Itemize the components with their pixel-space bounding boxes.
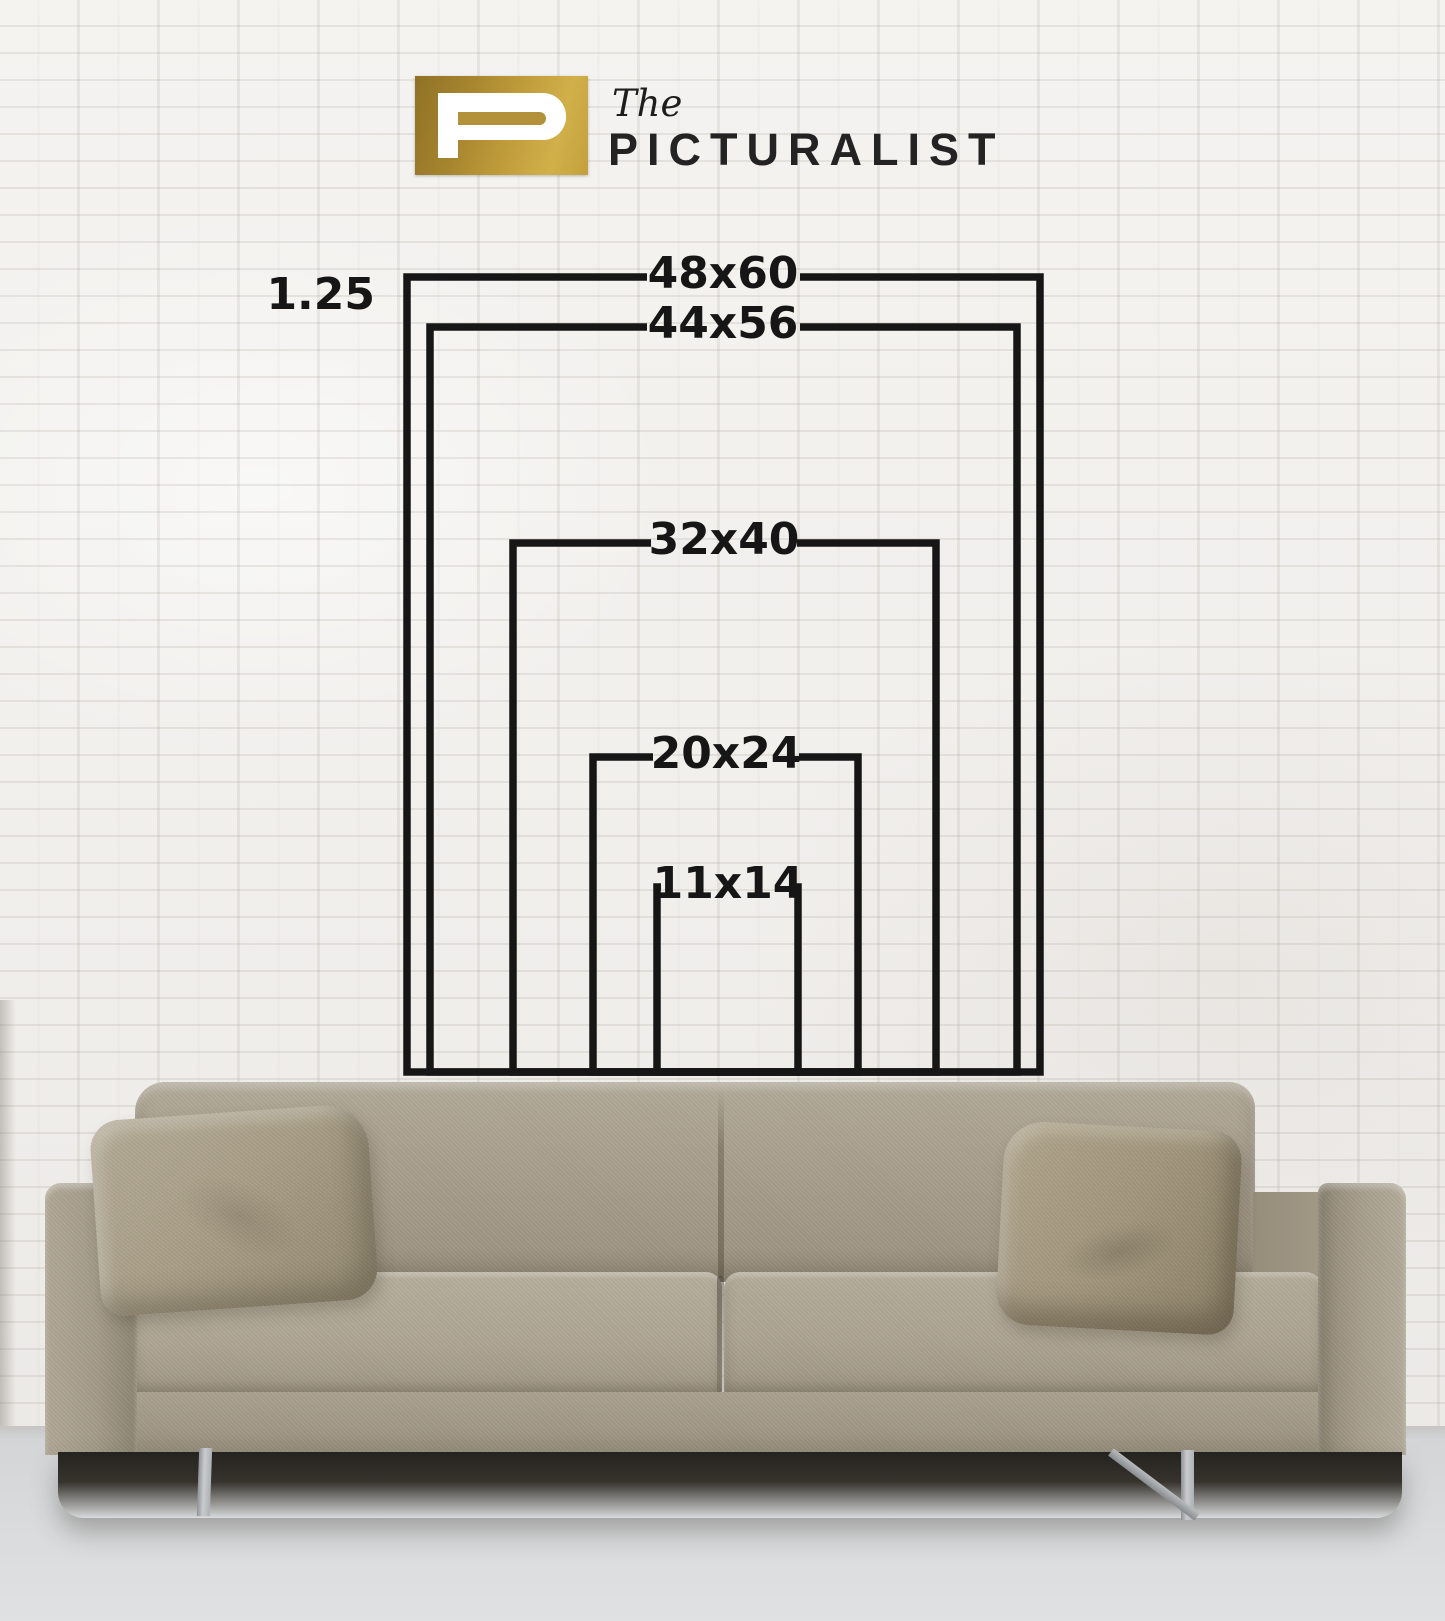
size-rectangle-11x14 <box>657 887 798 1072</box>
size-rectangle-48x60 <box>407 277 1040 1072</box>
sofa-armrest-right <box>1318 1183 1406 1455</box>
sofa-base <box>48 1392 1404 1454</box>
sofa-back-corner <box>1253 1192 1323 1277</box>
throw-pillow-left <box>89 1103 380 1318</box>
size-label-44x56: 44x56 <box>648 298 799 349</box>
sofa-seat-seam <box>717 1276 724 1396</box>
ratio-label: 1.25 <box>266 269 375 320</box>
pillow-crease <box>1032 1197 1205 1306</box>
size-label-48x60: 48x60 <box>648 248 799 299</box>
sofa-under-shadow <box>58 1452 1402 1518</box>
size-rectangle-32x40 <box>513 543 936 1072</box>
pillow-crease <box>145 1141 337 1292</box>
scene: P The PICTURALIST 48x60 44x56 32x40 20x2… <box>0 0 1445 1621</box>
size-rectangle-44x56 <box>430 327 1017 1072</box>
size-rectangle-20x24 <box>593 757 858 1072</box>
size-label-20x24: 20x24 <box>651 728 802 779</box>
size-label-11x14: 11x14 <box>653 858 804 909</box>
sofa-back-seam <box>718 1090 724 1278</box>
sofa-leg-left <box>197 1448 212 1516</box>
size-label-32x40: 32x40 <box>649 514 800 565</box>
throw-pillow-right <box>995 1120 1243 1336</box>
